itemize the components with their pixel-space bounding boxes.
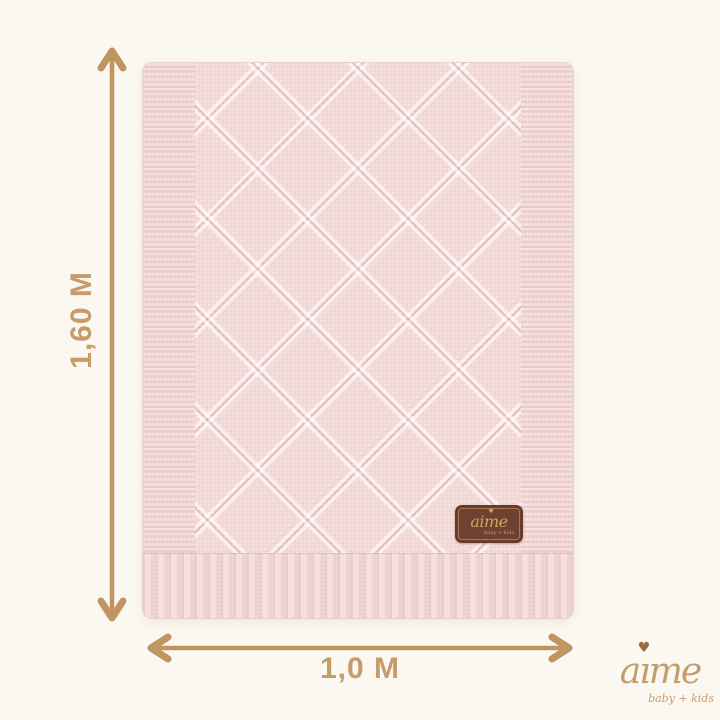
logo-brand-text: aı♥me bbox=[604, 650, 716, 694]
brand-logo: aı♥me baby + kids bbox=[604, 650, 716, 705]
blanket-bottom-ribbed-border bbox=[143, 553, 573, 618]
width-dimension-label: 1,0 M bbox=[260, 653, 460, 685]
logo-subtext: baby + kids bbox=[604, 693, 716, 705]
tag-subtext: baby + kids bbox=[484, 531, 514, 536]
height-dimension-label: 1,60 M bbox=[66, 258, 98, 382]
tag-heart-icon: ♥ bbox=[488, 509, 493, 515]
blanket-left-ribbed-border bbox=[143, 63, 196, 554]
logo-letters-me: me bbox=[649, 651, 700, 692]
logo-heart-icon: ♥ bbox=[638, 641, 651, 655]
blanket-diamond-knit-pattern bbox=[195, 63, 521, 554]
tag-brand-text: aime ♥ bbox=[470, 514, 507, 530]
blanket: aime ♥ baby + kids bbox=[143, 63, 573, 618]
blanket-right-ribbed-border bbox=[520, 63, 573, 554]
blanket-brand-tag: aime ♥ baby + kids bbox=[455, 505, 523, 543]
product-dimension-diagram: aime ♥ baby + kids 1,60 M 1,0 M aı♥me ba… bbox=[0, 0, 720, 720]
logo-letter-i: ı♥ bbox=[639, 650, 649, 694]
height-dimension-arrow bbox=[92, 44, 132, 628]
logo-letter-a: a bbox=[620, 651, 639, 692]
